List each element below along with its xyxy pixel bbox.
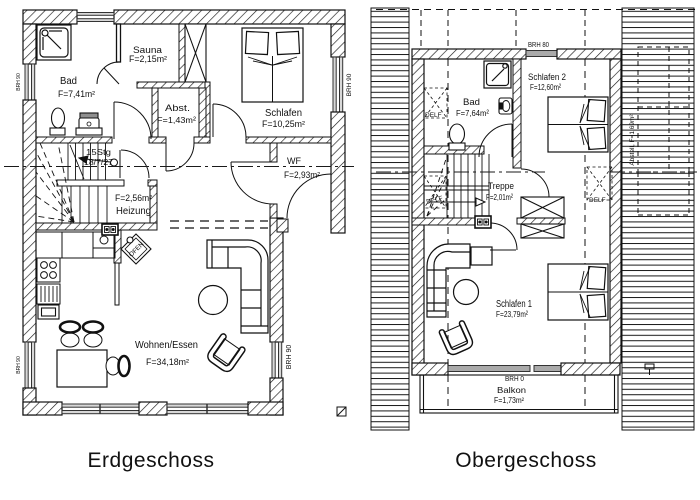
svg-text:F=2,01m²: F=2,01m² bbox=[486, 192, 513, 202]
svg-text:Balkon: Balkon bbox=[497, 385, 526, 395]
svg-text:Erdgeschoss: Erdgeschoss bbox=[88, 449, 215, 472]
svg-text:Bad: Bad bbox=[463, 97, 480, 108]
svg-text:Abst.: Abst. bbox=[165, 103, 190, 114]
svg-text:15Stg: 15Stg bbox=[86, 147, 111, 157]
svg-text:BRH 90: BRH 90 bbox=[346, 73, 353, 96]
svg-text:BRH 90: BRH 90 bbox=[286, 345, 293, 370]
svg-text:Obergeschoss: Obergeschoss bbox=[455, 449, 596, 472]
svg-text:F=7,64m²: F=7,64m² bbox=[456, 108, 489, 118]
svg-text:F=1,73m²: F=1,73m² bbox=[494, 396, 524, 405]
svg-text:F=12,60m²: F=12,60m² bbox=[530, 82, 561, 92]
svg-text:BRH 0: BRH 0 bbox=[505, 376, 524, 383]
svg-text:Abstell, F=1,69m²: Abstell, F=1,69m² bbox=[629, 114, 636, 166]
svg-text:F=10,25m²: F=10,25m² bbox=[262, 119, 305, 129]
svg-text:F=34,18m²: F=34,18m² bbox=[146, 357, 189, 367]
svg-text:18/7/27: 18/7/27 bbox=[84, 157, 113, 167]
svg-text:Heizung: Heizung bbox=[116, 206, 151, 217]
svg-text:BRH 90: BRH 90 bbox=[16, 73, 22, 91]
svg-text:F=2,56m²: F=2,56m² bbox=[115, 193, 152, 203]
svg-text:F=7,41m²: F=7,41m² bbox=[58, 89, 95, 99]
svg-text:Wohnen/Essen: Wohnen/Essen bbox=[135, 339, 198, 351]
svg-text:Schlafen: Schlafen bbox=[265, 108, 302, 119]
svg-text:BRH 80: BRH 80 bbox=[528, 42, 549, 49]
svg-text:BRH 90: BRH 90 bbox=[16, 356, 22, 374]
svg-text:DELF: DELF bbox=[589, 197, 606, 204]
svg-text:WF: WF bbox=[287, 156, 301, 167]
svg-text:DELF: DELF bbox=[425, 112, 442, 119]
svg-text:F=2,15m²: F=2,15m² bbox=[129, 54, 167, 64]
svg-text:F=1,43m²: F=1,43m² bbox=[157, 115, 196, 125]
svg-text:F=2,93m²: F=2,93m² bbox=[284, 170, 320, 180]
svg-text:Bad: Bad bbox=[60, 76, 77, 87]
svg-text:F=23,79m²: F=23,79m² bbox=[496, 309, 528, 319]
svg-text:Treppe: Treppe bbox=[488, 181, 514, 192]
